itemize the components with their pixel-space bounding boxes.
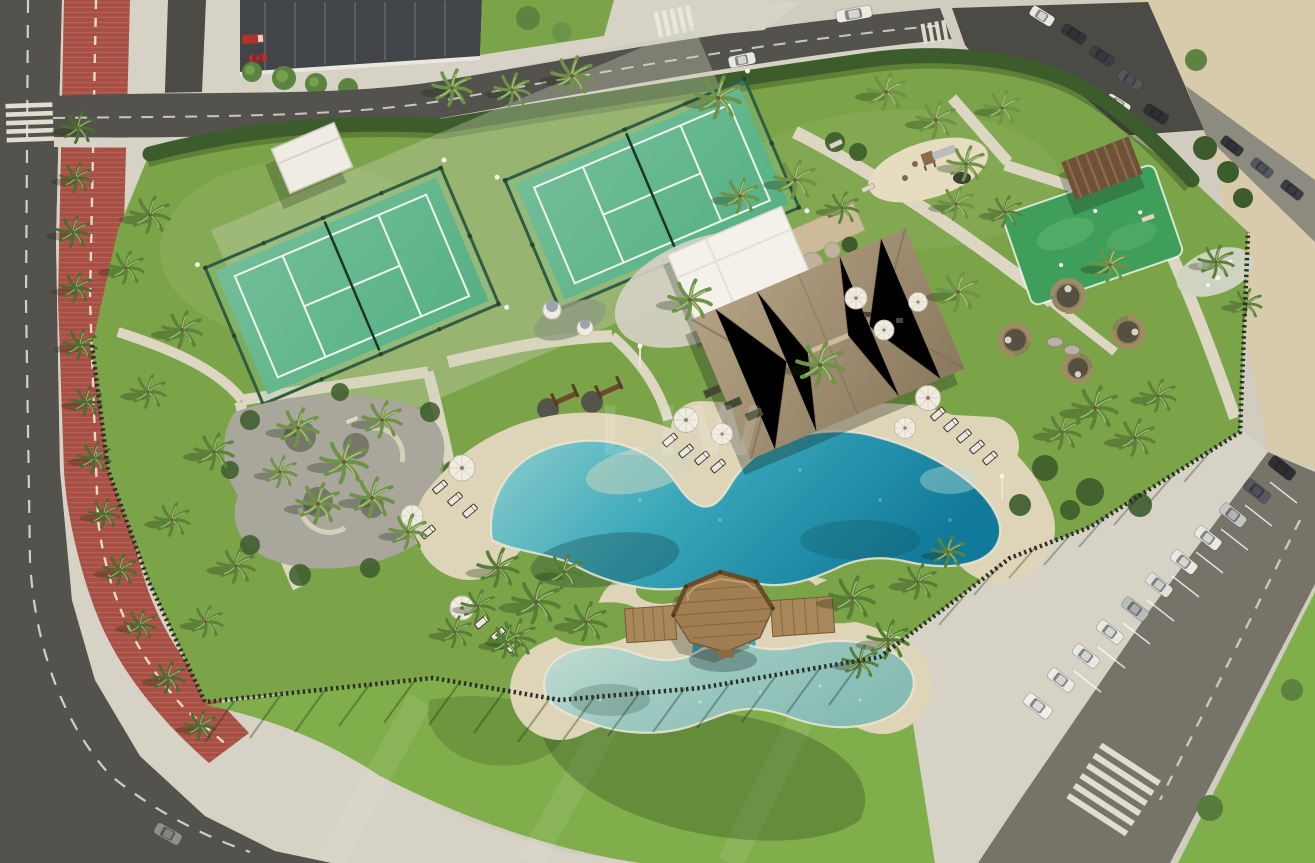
pouf: [1064, 345, 1080, 355]
terrace-table: [864, 312, 871, 317]
aerial-resort-render: LIW: [0, 0, 1315, 863]
lounge-pod: [1112, 316, 1144, 348]
terrace-umbrella: [845, 287, 867, 309]
tree: [516, 6, 540, 30]
pool-umbrella: [916, 386, 941, 411]
playground-trampoline: [953, 172, 971, 184]
tree: [1197, 795, 1223, 821]
spring-toy: [902, 175, 908, 181]
scene-canvas: LIW: [0, 0, 1315, 863]
tree: [1185, 49, 1207, 71]
water-shadow: [800, 520, 920, 560]
red-truck: [242, 34, 265, 45]
pool-umbrella: [449, 455, 475, 481]
terrace-umbrella: [909, 293, 928, 312]
beach-entry-shallow: [920, 466, 980, 494]
parked-car-red: [248, 53, 267, 62]
terrace-umbrella: [874, 320, 894, 340]
spring-toy: [912, 161, 918, 167]
watermark: LIW: [600, 391, 774, 471]
lounge-pod: [999, 324, 1031, 356]
tree: [1281, 679, 1303, 701]
terrace-table: [896, 318, 903, 323]
lounge-pod: [1051, 279, 1085, 313]
pouf: [1047, 337, 1063, 347]
pool-umbrella: [895, 418, 916, 439]
gazebo-step: [718, 649, 735, 658]
tree: [552, 22, 572, 42]
lounge-pod: [1063, 353, 1092, 382]
